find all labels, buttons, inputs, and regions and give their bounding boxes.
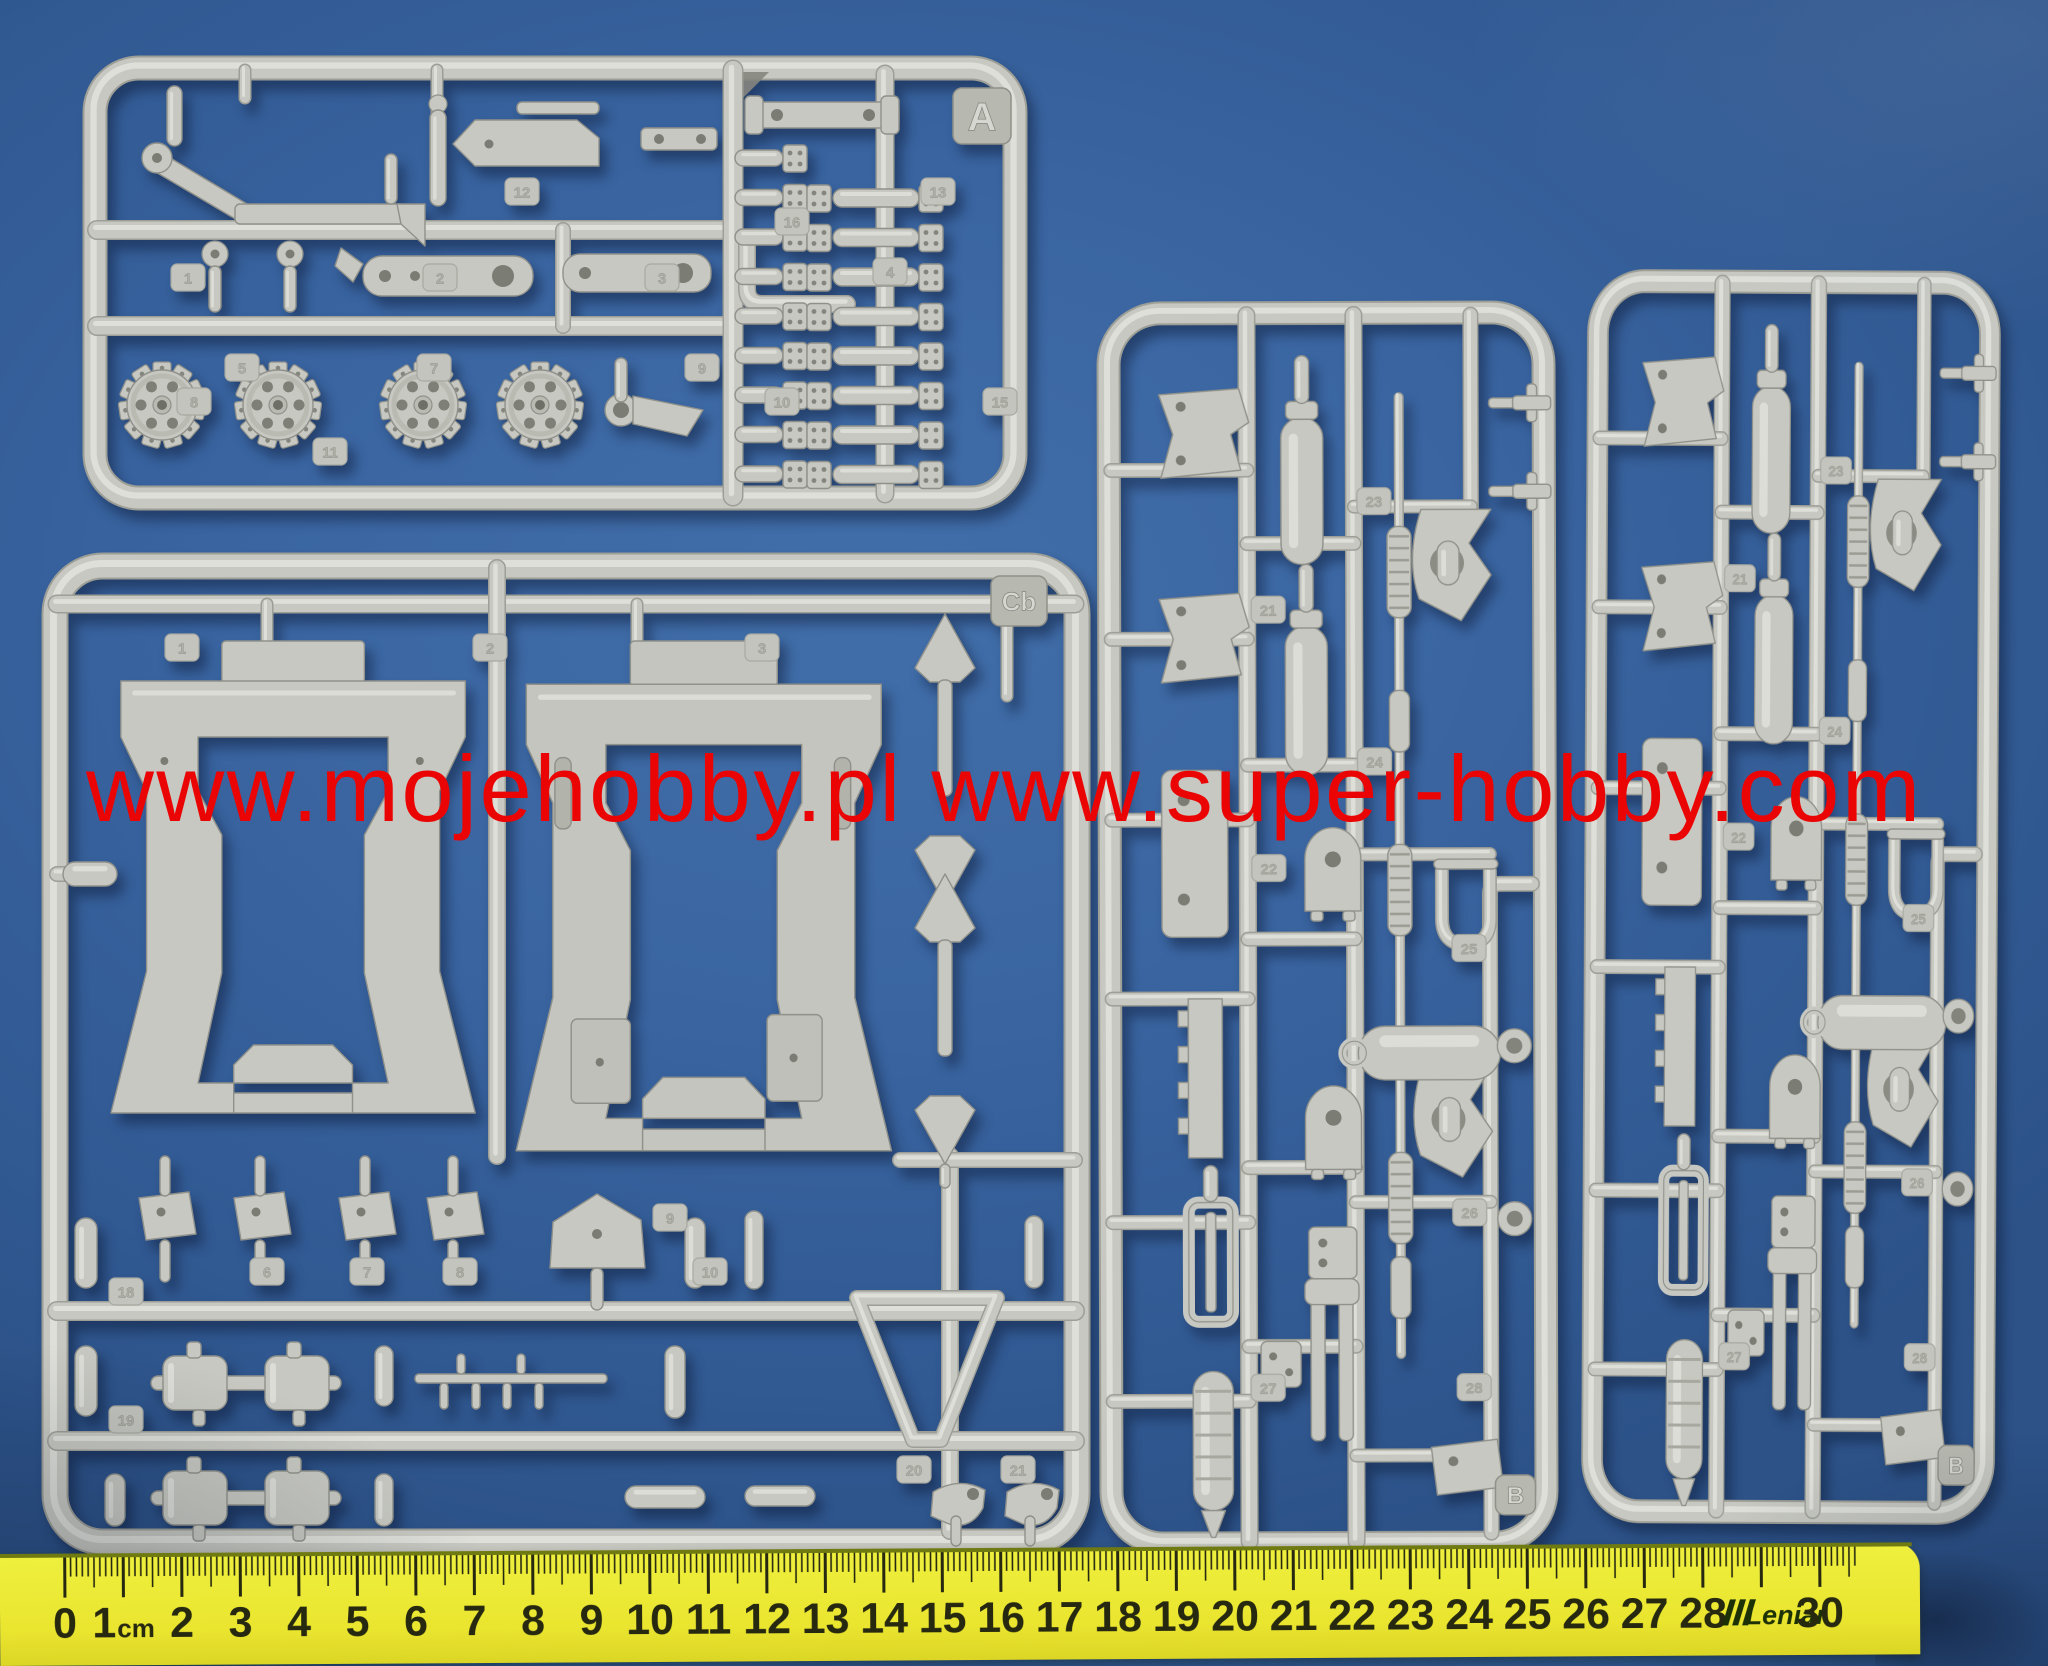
plate-part <box>783 343 807 370</box>
part-number: 7 <box>430 361 438 378</box>
cylinder-part <box>1025 1216 1043 1288</box>
part-number-tag: 1 <box>165 634 199 661</box>
part-number: 25 <box>1461 941 1478 958</box>
part-number-tag: 10 <box>765 388 799 415</box>
plastic-part <box>938 940 952 1056</box>
ruler-number: 23 <box>1386 1591 1434 1639</box>
plastic-part <box>1679 1181 1689 1280</box>
cylinder-part <box>833 387 919 405</box>
cylinder-part <box>735 150 783 166</box>
part-number-tag: 16 <box>775 208 809 235</box>
part-number: 2 <box>436 271 444 288</box>
plastic-part <box>293 1525 305 1541</box>
cylinder-part <box>735 269 783 285</box>
plastic-part <box>1391 1257 1411 1319</box>
part-number: 10 <box>702 1265 719 1282</box>
shock-absorber <box>1752 386 1791 533</box>
plate-part <box>783 145 807 172</box>
part-number-tag: 7 <box>417 354 451 381</box>
plastic-part <box>1311 911 1323 921</box>
part-number: 8 <box>190 395 198 412</box>
cylinder-part <box>833 347 919 365</box>
part-number-tag: 21 <box>1725 565 1756 592</box>
padlock-plate <box>1769 1055 1820 1139</box>
big-cylinder <box>1358 1026 1500 1080</box>
ruler-number: 12 <box>743 1595 791 1643</box>
ruler-number: 15 <box>919 1594 967 1642</box>
ruler-number: 8 <box>521 1597 545 1645</box>
plastic-part <box>472 1383 480 1409</box>
plastic-part <box>287 1457 301 1473</box>
shock-absorber <box>1281 417 1323 564</box>
part-number-tag: 3 <box>745 634 779 661</box>
bracket-part <box>1159 389 1249 479</box>
plate-part <box>807 462 831 489</box>
plastic-part <box>517 102 599 114</box>
part-number-tag: 11 <box>313 438 347 465</box>
cylinder-part <box>665 1346 685 1418</box>
plastic-part <box>187 1342 201 1358</box>
part-number: 1 <box>178 641 186 658</box>
part-number: 27 <box>1260 1381 1277 1398</box>
plate-part <box>919 462 943 489</box>
blade-part <box>633 396 703 436</box>
sprue-b-right: B2122232425262728 <box>1583 271 2000 1523</box>
ruler-number: 25 <box>1503 1591 1551 1639</box>
ruler-number: 3 <box>228 1598 252 1646</box>
plastic-part <box>535 1383 543 1409</box>
part-number: 12 <box>514 185 531 202</box>
part-number: 3 <box>758 641 766 658</box>
part-number-tag: 22 <box>1252 855 1286 882</box>
plastic-part <box>193 1410 205 1426</box>
plastic-part <box>360 1156 370 1196</box>
plastic-part <box>517 1354 525 1374</box>
driveshaft-part <box>915 874 975 1188</box>
watermark-text: www.mojehobby.pl www.super-hobby.com <box>0 742 2048 836</box>
plastic-part <box>951 1516 961 1546</box>
sprue-runner <box>1596 967 1719 968</box>
plate-part <box>919 225 943 252</box>
gun-cradle-frame <box>111 641 475 1113</box>
cylinder-part <box>375 1474 393 1526</box>
ruler-number: 18 <box>1094 1593 1142 1641</box>
ruler-number: 30 <box>1796 1589 1844 1637</box>
rack-part <box>1178 999 1222 1158</box>
cylinder-part <box>833 426 919 444</box>
part-number: 13 <box>930 185 947 202</box>
cylinder-part <box>833 466 919 484</box>
part-number: 9 <box>698 361 706 378</box>
part-number-tag: 10 <box>693 1258 727 1285</box>
part-number-tag: 23 <box>1821 457 1852 484</box>
plate-part <box>807 383 831 410</box>
part-number-tag: 21 <box>1001 1456 1035 1483</box>
sprue-letter: B <box>1507 1483 1524 1510</box>
ruler-number: 17 <box>1036 1593 1084 1641</box>
cylinder-part <box>735 348 783 364</box>
cylinder-part <box>745 1486 815 1506</box>
part-number-tag: 12 <box>505 178 539 205</box>
cylinder-part <box>833 189 919 207</box>
plastic-part <box>1343 911 1355 921</box>
part-number-tag: 3 <box>645 264 679 291</box>
ruler-number: 20 <box>1211 1592 1259 1640</box>
part-number-tag: 23 <box>1357 488 1391 515</box>
cylinder-part <box>745 1211 763 1289</box>
cylinder-part <box>1295 356 1309 404</box>
cylinder-part <box>75 1346 97 1416</box>
cylinder-part <box>1677 1134 1690 1170</box>
pin-part <box>430 110 446 206</box>
ruler-number: 9 <box>579 1596 603 1644</box>
cylinder-part <box>940 1164 950 1188</box>
plastic-part <box>1773 1261 1786 1410</box>
cylinder-part <box>1768 533 1781 581</box>
part-number: 25 <box>1911 911 1926 928</box>
plastic-part <box>747 102 899 128</box>
part-number-tag: 18 <box>109 1278 143 1305</box>
plate-part <box>919 383 943 410</box>
cylinder-part <box>1299 564 1313 612</box>
part-number: 8 <box>456 1265 464 1282</box>
plate-part <box>783 461 807 488</box>
plastic-part <box>745 96 763 134</box>
plastic-part <box>1845 1226 1863 1288</box>
part-number-tag: 26 <box>1902 1169 1933 1196</box>
plastic-part <box>915 874 975 942</box>
plastic-part <box>1962 366 1996 380</box>
plate-part <box>783 303 807 330</box>
plastic-part <box>1804 1139 1815 1149</box>
part-number: 27 <box>1727 1350 1742 1367</box>
part-number: 7 <box>363 1265 371 1282</box>
plastic-part <box>915 614 975 682</box>
plate-part <box>1309 1227 1357 1279</box>
gun-cradle-frame <box>516 641 891 1151</box>
ruler-number: 28 <box>1679 1589 1727 1637</box>
part-number: 23 <box>1366 494 1383 511</box>
cylinder-part <box>833 229 919 247</box>
anchor-bracket <box>1870 479 1941 591</box>
part-number-tag: 6 <box>250 1258 284 1285</box>
sprue-letter-tag: Cb <box>991 576 1047 626</box>
part-number-tag: 13 <box>921 178 955 205</box>
plastic-part <box>448 1156 458 1196</box>
big-cylinder <box>1818 996 1946 1050</box>
plastic-part <box>1798 1261 1811 1410</box>
part-number-tag: 4 <box>873 258 907 285</box>
part-number-tag: 20 <box>897 1456 931 1483</box>
part-number: 1 <box>184 271 192 288</box>
flag-bracket <box>234 1192 291 1240</box>
bolt-pin <box>209 266 221 312</box>
flag-bracket <box>1431 1439 1503 1495</box>
plastic-part <box>1961 455 1995 469</box>
flag-bracket <box>427 1192 484 1240</box>
plate-part <box>919 422 943 449</box>
cylinder-part <box>735 466 783 482</box>
plate-part <box>807 343 831 370</box>
plastic-part <box>235 204 405 224</box>
plate-part <box>807 185 831 212</box>
ruler-number: 21 <box>1269 1592 1317 1640</box>
cylinder-part <box>735 427 783 443</box>
ruler-number: 14 <box>860 1594 908 1642</box>
part-number: 18 <box>118 1285 135 1302</box>
ruler-number: 6 <box>404 1597 428 1645</box>
cylinder-part <box>735 190 783 206</box>
part-number: 21 <box>1260 603 1277 620</box>
ruler-number: 16 <box>977 1594 1025 1642</box>
plate-part <box>807 304 831 331</box>
part-number-tag: 1 <box>171 264 205 291</box>
cylinder-part <box>75 1218 97 1288</box>
cylinder-part <box>1438 1098 1460 1142</box>
part-number: 6 <box>263 1265 271 1282</box>
plastic-part <box>1768 1248 1817 1274</box>
plate-part <box>807 264 831 291</box>
part-number-tag: 25 <box>1452 935 1486 962</box>
part-number-tag: 15 <box>983 388 1017 415</box>
plastic-part <box>1848 660 1866 722</box>
part-number-tag: 2 <box>473 634 507 661</box>
part-number: 26 <box>1909 1176 1924 1193</box>
plastic-part <box>591 1268 603 1310</box>
plastic-part <box>1805 880 1816 890</box>
plastic-part <box>193 1525 205 1541</box>
shock-absorber <box>1754 595 1793 744</box>
plastic-part <box>1339 1292 1353 1441</box>
plate-part <box>919 304 943 331</box>
plastic-part <box>160 1156 170 1196</box>
ruler-number: 0 <box>53 1600 77 1648</box>
anchor-bracket <box>1412 509 1491 620</box>
ruler-number: 26 <box>1562 1590 1610 1638</box>
sprocket-wheel <box>496 362 584 449</box>
part-number-tag: 27 <box>1251 1374 1285 1401</box>
box-part <box>453 120 599 166</box>
part-number-tag: 27 <box>1719 1343 1750 1370</box>
ruler-number: 27 <box>1620 1590 1668 1638</box>
flag-bracket <box>139 1192 196 1240</box>
plastic-part <box>293 1410 305 1426</box>
plastic-part <box>1513 396 1551 410</box>
plastic-part <box>1311 1292 1325 1441</box>
sprue-runner <box>1719 908 1815 909</box>
plastic-part <box>187 1457 201 1473</box>
sprue-a: A12345789101112131516 <box>85 58 1025 508</box>
ruler-number: 10 <box>626 1596 674 1644</box>
flag-bracket <box>339 1192 396 1240</box>
part-number-tag: 9 <box>653 1204 687 1231</box>
anchor-bracket <box>1414 1066 1493 1177</box>
part-number-tag: 21 <box>1251 596 1285 623</box>
cylinder-part <box>385 154 397 204</box>
part-number: 20 <box>906 1463 923 1480</box>
plastic-part <box>1776 880 1787 890</box>
sprue-letter-tag: A <box>953 88 1011 144</box>
anchor-bracket <box>1867 1036 1938 1148</box>
cylinder-part <box>167 86 182 146</box>
cylinder-part <box>375 1346 393 1406</box>
sprue-letter-tag: B <box>1495 1475 1535 1515</box>
sprue-letter: B <box>1948 1452 1964 1479</box>
plate-part <box>1772 1196 1816 1248</box>
plastic-part <box>1206 1212 1216 1311</box>
cylinder-part <box>1889 1067 1909 1111</box>
part-number: 21 <box>1732 572 1747 589</box>
ruler-number: 22 <box>1328 1592 1376 1640</box>
plate-part <box>919 343 943 370</box>
part-number: 28 <box>1466 1380 1483 1397</box>
part-number: 11 <box>322 445 338 462</box>
cylinder-part <box>1437 541 1459 585</box>
part-number-tag: 5 <box>225 354 259 381</box>
bolt-pin <box>284 266 296 312</box>
cylinder-part <box>1765 325 1778 373</box>
part-number-tag: 2 <box>423 264 457 291</box>
sprue-c: Cb12367891018192021 <box>45 556 1087 1552</box>
plastic-part <box>1513 484 1551 498</box>
plate-part <box>919 264 943 291</box>
plastic-part <box>222 641 365 683</box>
part-number: 5 <box>238 361 246 378</box>
plate-part <box>807 225 831 252</box>
rack-part <box>1655 967 1695 1126</box>
part-number-tag: 28 <box>1904 1344 1935 1371</box>
ruler-number: 11 <box>686 1596 732 1644</box>
plastic-part <box>287 1342 301 1358</box>
plastic-part <box>503 1383 511 1409</box>
plastic-part <box>457 1354 465 1374</box>
part-number-tag: 7 <box>350 1258 384 1285</box>
part-number-tag: 28 <box>1457 1374 1491 1401</box>
cylinder-part <box>625 1486 705 1508</box>
plastic-part <box>1344 1169 1356 1179</box>
part-number: 10 <box>774 395 791 412</box>
part-number: 21 <box>1010 1463 1027 1480</box>
ruler-number: 13 <box>802 1595 850 1643</box>
part-number-tag: 8 <box>443 1258 477 1285</box>
plastic-part <box>1434 859 1498 869</box>
plastic-part <box>160 1240 170 1282</box>
ruler-number: 19 <box>1153 1593 1201 1641</box>
plastic-part <box>1305 1279 1359 1305</box>
plastic-part <box>440 1383 448 1409</box>
cylinder-part <box>615 358 627 402</box>
cylinder-part <box>63 862 117 886</box>
plate-part <box>807 422 831 449</box>
part-number: 26 <box>1461 1205 1478 1222</box>
axle-part <box>151 1457 341 1541</box>
cylinder-part <box>1204 1166 1218 1202</box>
plate-part <box>783 264 807 291</box>
part-number: 19 <box>118 1413 135 1430</box>
part-number: 23 <box>1828 464 1843 481</box>
ruler: 01cm234567891011121314151617181920212223… <box>0 1539 2048 1666</box>
part-number-tag: 25 <box>1903 905 1934 932</box>
plastic-part <box>1025 1516 1035 1546</box>
plastic-part <box>415 1374 607 1383</box>
cylinder-part <box>735 308 783 324</box>
part-number: 15 <box>992 395 1009 412</box>
plastic-part <box>881 96 899 134</box>
part-number: 16 <box>784 215 801 232</box>
part-number: 4 <box>886 265 895 282</box>
cylinder-part <box>833 308 919 326</box>
plastic-part <box>335 248 363 282</box>
bracket-part <box>1642 357 1724 447</box>
cylinder-part <box>1892 511 1912 555</box>
sprue-letter-tag: B <box>1938 1445 1974 1485</box>
ruler-number: 5 <box>345 1598 369 1646</box>
part-number: 3 <box>658 271 666 288</box>
plastic-part <box>1775 1138 1786 1148</box>
photo-backdrop: A12345789101112131516 Cb1236789101819202… <box>0 0 2048 1666</box>
sprue-letter: Cb <box>1002 586 1037 616</box>
cylinder-part <box>105 1474 125 1526</box>
part-number-tag: 9 <box>685 354 719 381</box>
part-number-tag: 8 <box>177 388 211 415</box>
sprue-b-middle: B2122232425262728 <box>1098 302 1556 1553</box>
sprue-letter: A <box>968 95 997 139</box>
part-number: 2 <box>486 641 494 658</box>
plastic-part <box>255 1156 265 1196</box>
part-number: 9 <box>666 1211 674 1228</box>
ruler-number: 7 <box>462 1597 486 1645</box>
part-number-tag: 26 <box>1453 1199 1487 1226</box>
part-number: 22 <box>1260 861 1277 878</box>
part-number-tag: 19 <box>109 1406 143 1433</box>
axle-part <box>151 1342 341 1426</box>
plate-part <box>783 422 807 449</box>
part-number: 28 <box>1912 1351 1927 1368</box>
plastic-part <box>1312 1169 1324 1179</box>
ruler-number: 24 <box>1445 1591 1493 1639</box>
flag-bracket <box>1880 1409 1945 1465</box>
ruler-number: 2 <box>170 1599 194 1647</box>
padlock-plate <box>1305 1086 1361 1170</box>
ruler-number: 4 <box>287 1598 311 1646</box>
